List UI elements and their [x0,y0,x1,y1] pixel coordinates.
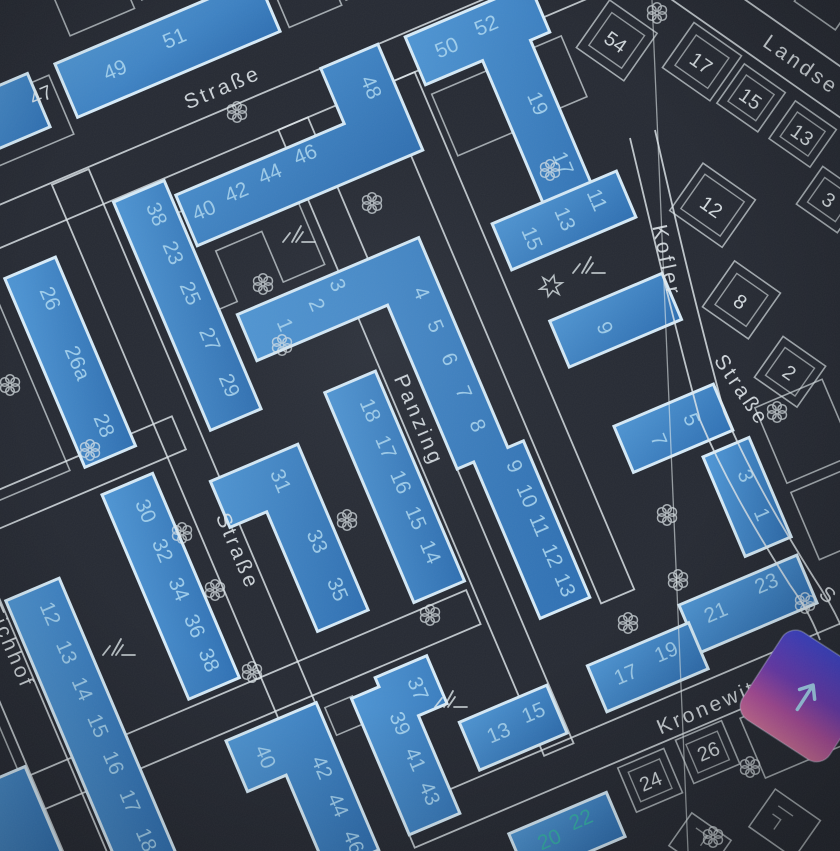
map-viewport[interactable]: 47495140424446485052191738232527292626a2… [0,0,840,851]
city-map[interactable]: 47495140424446485052191738232527292626a2… [0,0,840,851]
